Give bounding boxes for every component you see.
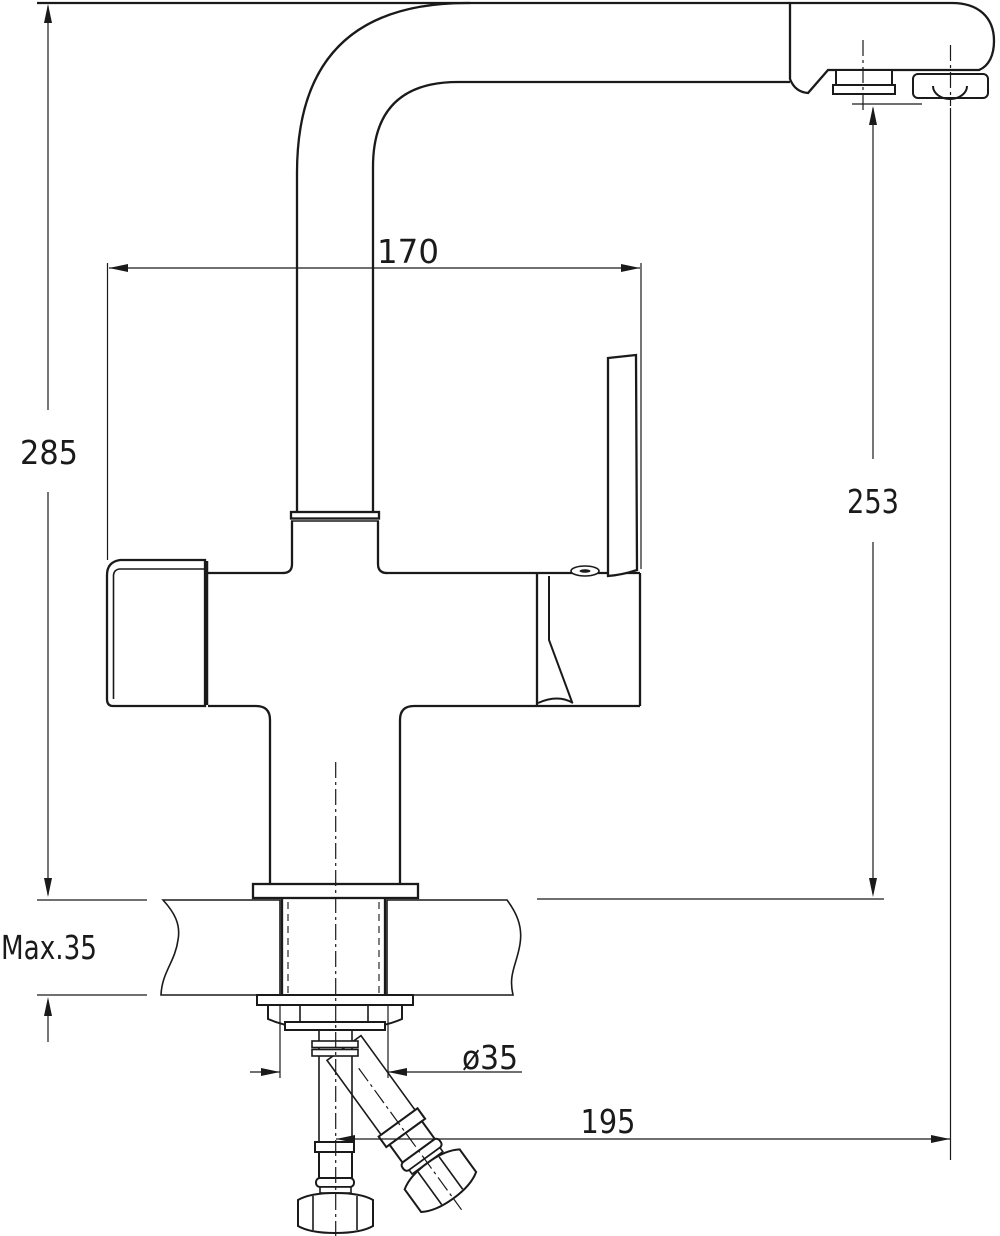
arrow-285-down (44, 878, 52, 897)
handle-pivot-slot (580, 569, 591, 573)
centerlines (336, 40, 951, 1236)
dim-text-195: 195 (581, 1102, 636, 1141)
technical-drawing-page: 285 170 253 Max.35 (0, 0, 1000, 1236)
body-bottom-left (208, 706, 270, 884)
dim-text-d35: ø35 (462, 1038, 518, 1077)
faucet-body (107, 3, 994, 898)
countertop-section (161, 900, 521, 995)
handle-lever-blade (608, 355, 637, 576)
arrow-253-down (869, 878, 877, 897)
dim-spout-height: 253 (537, 104, 922, 899)
arrow-170-right (621, 264, 640, 272)
arrow-195-right (931, 1135, 950, 1143)
hose-vertical-ferrule (315, 1142, 354, 1152)
arrow-d35-left (261, 1068, 280, 1076)
right-handle (537, 355, 640, 706)
spout-outer-profile (297, 3, 790, 512)
faucet-dimension-drawing: 285 170 253 Max.35 (0, 0, 1000, 1236)
countertop-right-slab (387, 900, 521, 995)
dim-text-285: 285 (20, 433, 78, 472)
handle-base-cone-line (549, 576, 572, 702)
body-bottom-right (400, 706, 640, 884)
body-neck-left (283, 521, 292, 573)
hose-crimp-band-2 (312, 1050, 358, 1057)
aerator-outlet-lip (833, 85, 895, 94)
mounting-washer (257, 995, 413, 1005)
supply-hoses (298, 1028, 489, 1233)
left-handle-outline (107, 560, 205, 706)
dim-overall-height: 285 (20, 3, 470, 897)
hose-crimp-band-1 (312, 1041, 358, 1048)
arrow-253-up (869, 106, 877, 125)
arrow-285-up (44, 4, 52, 23)
hose-vertical-collar (316, 1178, 354, 1187)
dim-text-170: 170 (377, 232, 439, 271)
shank-end-cap (285, 1022, 385, 1030)
arrow-170-left (109, 264, 128, 272)
spout-collar (291, 512, 379, 519)
spout-inner-profile (373, 82, 790, 512)
countertop-left-slab (161, 900, 280, 995)
left-handle (107, 560, 207, 706)
dim-text-253: 253 (847, 482, 899, 521)
body-neck-right (378, 521, 387, 573)
handle-base-bottom-arc (538, 699, 573, 704)
dim-deck-thickness: Max.35 (1, 900, 147, 1042)
dim-text-max35: Max.35 (1, 928, 97, 967)
arrow-d35-right (388, 1068, 407, 1076)
